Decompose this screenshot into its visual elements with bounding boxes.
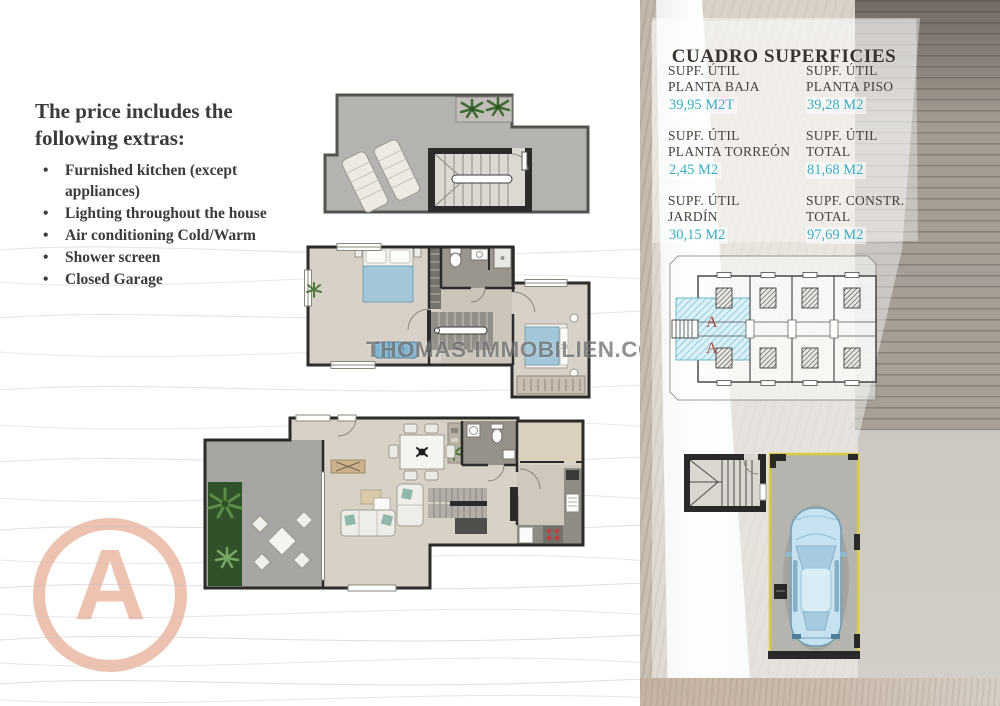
surface-cell-planta-piso: SUPF. ÚTIL PLANTA PISO 39,28 M2 (806, 63, 916, 114)
surface-value: 2,45 M2 (668, 162, 721, 179)
surface-value: 97,69 M2 (806, 227, 866, 244)
surface-value: 39,28 M2 (806, 97, 866, 114)
list-item: •Furnished kitchen (except appliances) (35, 160, 297, 202)
extras-list: •Furnished kitchen (except appliances) •… (35, 160, 297, 290)
garage-plan-drawing (678, 448, 893, 670)
surface-table: SUPF. ÚTIL PLANTA BAJA 39,95 M2T SUPF. Ú… (668, 63, 916, 244)
bullet-icon: • (35, 225, 65, 246)
unit-letter: A (74, 535, 146, 635)
surface-cell-util-total: SUPF. ÚTIL TOTAL 81,68 M2 (806, 128, 916, 179)
cooktop (543, 526, 563, 543)
stairwell (428, 148, 532, 212)
car-top-view (783, 505, 849, 651)
closet-row (517, 376, 585, 394)
mirror-left (785, 552, 792, 557)
mirror-right (840, 552, 847, 557)
stairwell (684, 454, 766, 512)
ground-floor-floorplan (198, 412, 598, 592)
first-floor-floorplan (303, 242, 603, 402)
unit-label-top: A (706, 314, 718, 331)
photo-panel: CUADRO SUPERFICIES SUPF. ÚTIL PLANTA BAJ… (640, 0, 1000, 706)
surface-value: 30,15 M2 (668, 227, 728, 244)
entrance-door (338, 415, 356, 421)
door-opening (744, 454, 758, 460)
surface-value: 39,95 M2T (668, 97, 737, 114)
bullet-icon: • (35, 203, 65, 224)
entrance-stairs (672, 320, 698, 338)
storage-floor (520, 423, 583, 462)
unit-letter-badge: A (33, 518, 187, 672)
watermark: THOMAS-IMMOBILIEN.COM (366, 337, 675, 363)
surface-cell-planta-torreon: SUPF. ÚTIL PLANTA TORREÓN 2,45 M2 (668, 128, 806, 179)
double-bed-1 (355, 248, 421, 302)
ground-band (640, 678, 1000, 706)
door-leaf (522, 152, 527, 170)
surface-value: 81,68 M2 (806, 162, 866, 179)
site-plan-drawing: A A (662, 250, 892, 408)
bullet-icon: • (35, 247, 65, 268)
list-item: •Closed Garage (35, 269, 297, 290)
price-extras-block: The price includes the following extras:… (35, 98, 297, 291)
surface-cell-planta-baja: SUPF. ÚTIL PLANTA BAJA 39,95 M2T (668, 63, 806, 114)
roof-terrace-floorplan (314, 82, 594, 220)
list-item: •Lighting throughout the house (35, 203, 297, 224)
windshield (796, 546, 836, 570)
sliding-glass-door (322, 472, 325, 580)
surface-cell-jardin: SUPF. ÚTIL JARDÍN 30,15 M2 (668, 193, 806, 244)
rear-window (803, 612, 829, 630)
surface-cell-constr-total: SUPF. CONSTR. TOTAL 97,69 M2 (806, 193, 916, 244)
list-item: •Air conditioning Cold/Warm (35, 225, 297, 246)
list-item: •Shower screen (35, 247, 297, 268)
extras-title: The price includes the following extras: (35, 98, 297, 152)
brochure-page: A The price includes the following extra… (0, 0, 1000, 706)
bullet-icon: • (35, 269, 65, 290)
unit-label-bottom: A (706, 340, 718, 357)
bullet-icon: • (35, 160, 65, 202)
roof (801, 568, 831, 612)
wardrobe (429, 247, 441, 309)
